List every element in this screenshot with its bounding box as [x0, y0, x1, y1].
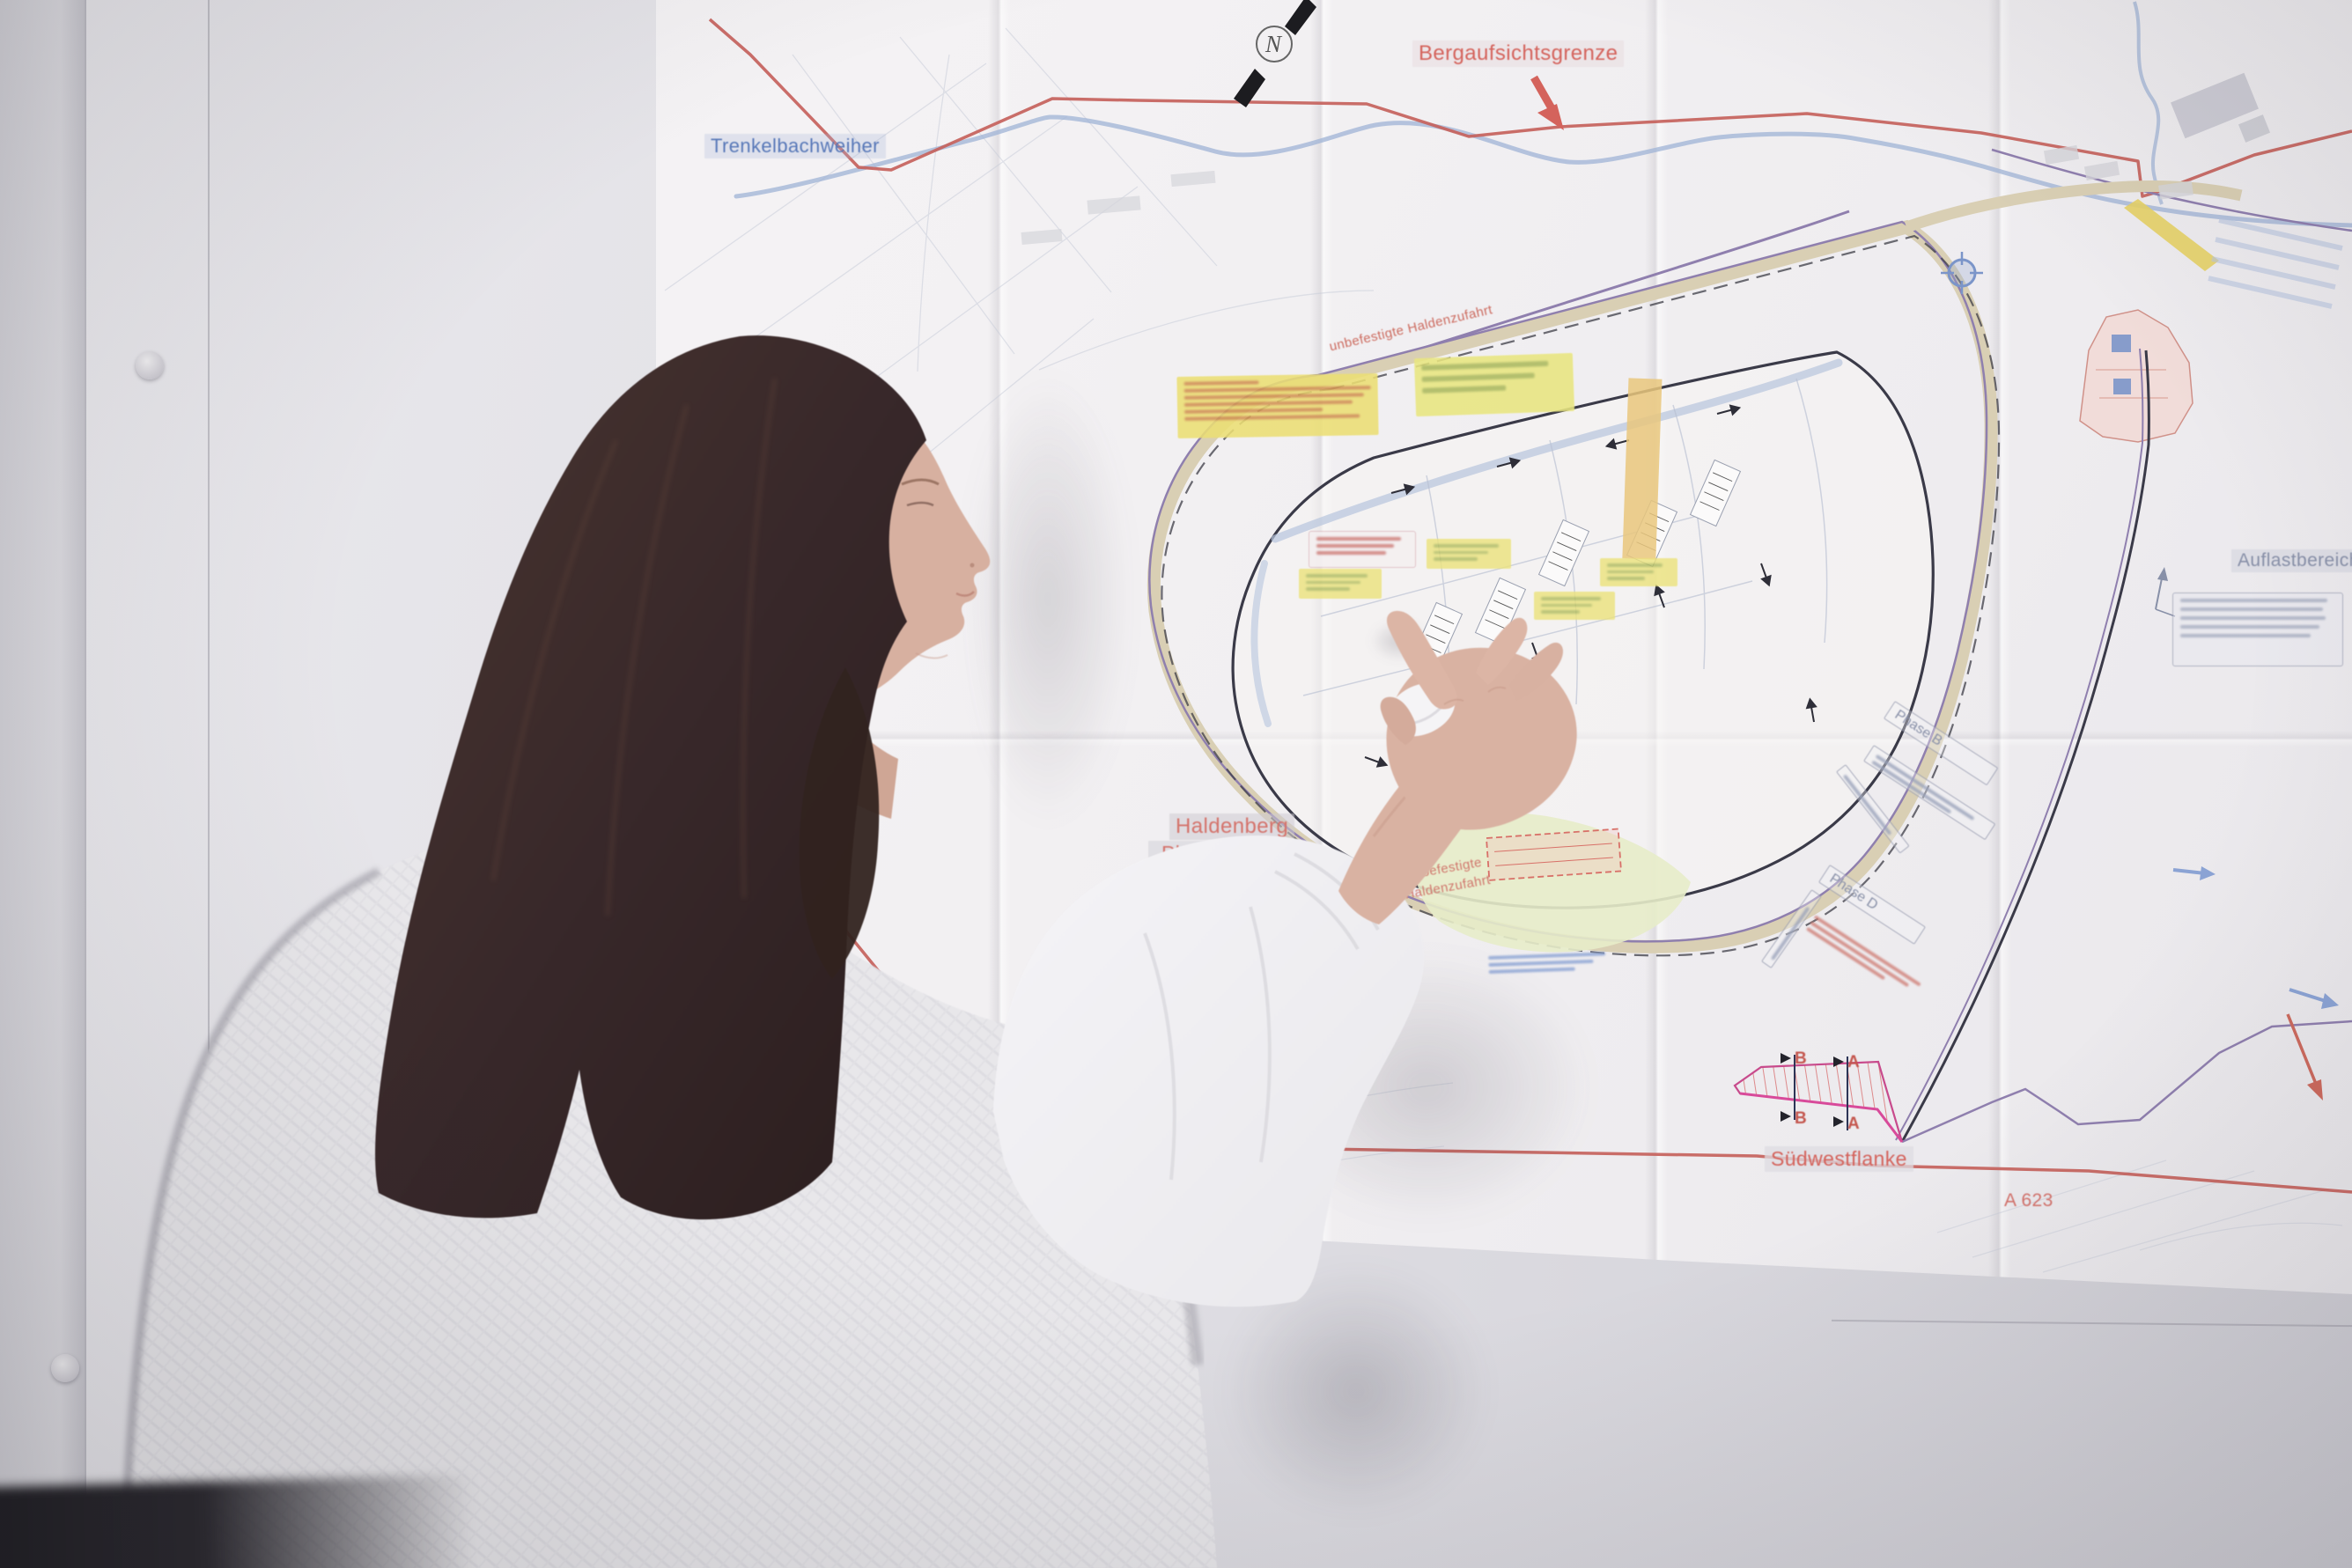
- photo-scene: N Trenkelbachweiher Bergaufsichtsgrenze …: [0, 0, 2352, 1568]
- foreground-shadow: [0, 1475, 476, 1568]
- woman-pointing: [0, 0, 2352, 1568]
